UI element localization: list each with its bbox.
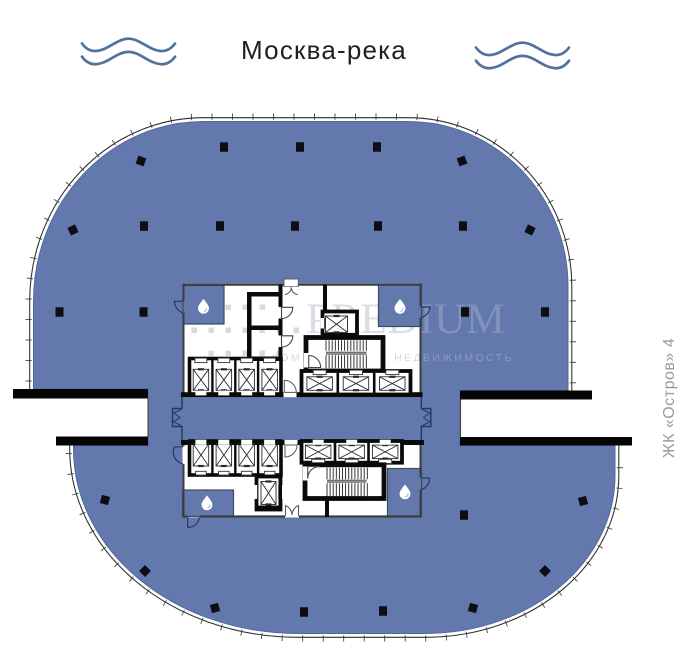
svg-text:Москва-река: Москва-река (241, 35, 407, 65)
svg-text:ЖК «Остров» 4: ЖК «Остров» 4 (661, 338, 678, 458)
